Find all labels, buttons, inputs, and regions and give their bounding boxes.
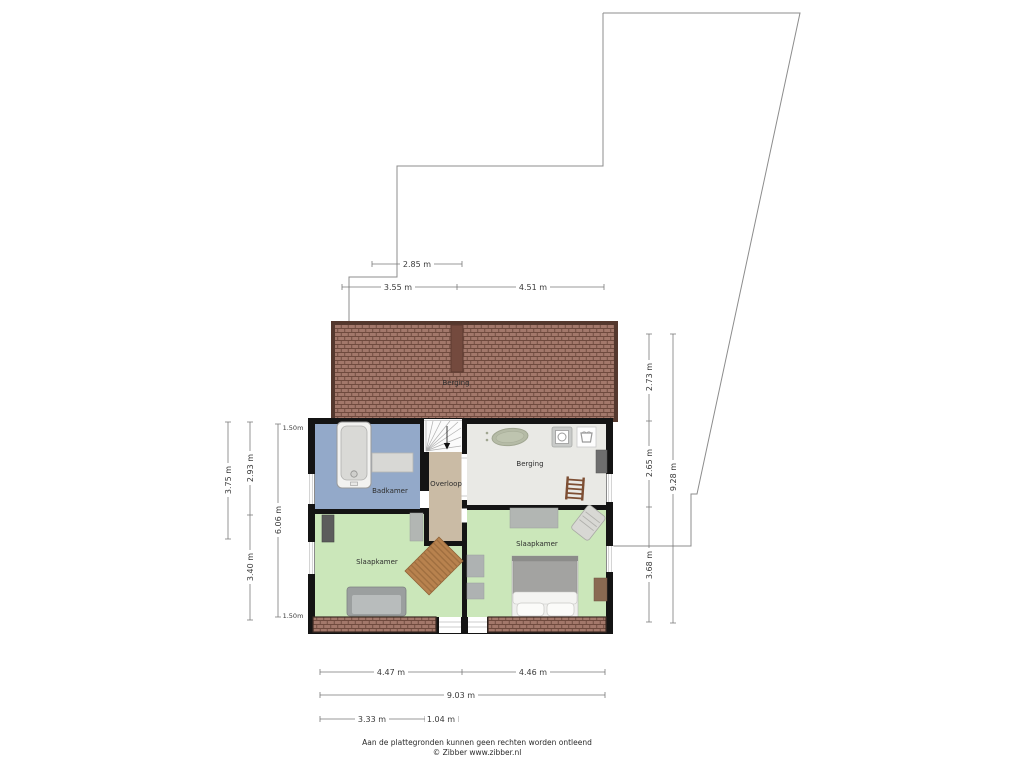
room-stairs — [424, 419, 462, 452]
nightstand-icon — [467, 555, 484, 577]
laundry-basket-icon — [577, 427, 596, 447]
window-bottom-left — [439, 617, 461, 633]
window-left-slaapkamer — [308, 542, 315, 574]
roof-label: Berging — [442, 379, 469, 387]
dimensions-bottom: 4.47 m 4.46 m 9.03 m 3.33 m 1.04 m — [320, 667, 605, 724]
dim-6-06: 6.06 m — [274, 506, 283, 534]
drain-dot — [486, 432, 489, 435]
room-slaapkamer-right: Slaapkamer — [467, 504, 607, 619]
roof-berging: Berging — [333, 323, 616, 420]
dim-2-93: 2.93 m — [246, 454, 255, 482]
dim-2-65: 2.65 m — [645, 449, 654, 477]
drain-dot — [486, 439, 489, 442]
dresser-icon — [510, 508, 558, 528]
window-right-berging — [607, 474, 614, 502]
dim-9-28: 9.28 m — [669, 463, 678, 491]
marker-150-bottom: 1.50m — [283, 612, 304, 620]
dim-4-51: 4.51 m — [519, 283, 547, 292]
floorplan-canvas: Berging Badkamer Overloop Berging — [0, 0, 1024, 768]
closet-icon — [322, 515, 334, 542]
chimney — [451, 325, 463, 372]
dim-3-55: 3.55 m — [384, 283, 412, 292]
window-bottom-right — [468, 617, 487, 633]
sofa-icon — [347, 587, 406, 616]
dim-4-47: 4.47 m — [377, 668, 405, 677]
nightstand-icon — [467, 583, 484, 599]
dim-3-68: 3.68 m — [645, 551, 654, 579]
room-label-berging: Berging — [516, 460, 543, 468]
footer-disclaimer: Aan de plattegronden kunnen geen rechten… — [362, 738, 592, 747]
dimensions-left: 3.75 m 2.93 m 3.40 m 6.06 m 1.50m 1.50m — [223, 422, 303, 620]
door-slaapkamer-right — [462, 509, 468, 523]
floorplan-page: Berging Badkamer Overloop Berging — [0, 0, 1024, 768]
footer: Aan de plattegronden kunnen geen rechten… — [362, 738, 592, 757]
footer-credit: © Zibber www.zibber.nl — [433, 748, 522, 757]
closet-icon — [410, 513, 423, 541]
dim-9-03: 9.03 m — [447, 691, 475, 700]
dim-4-46: 4.46 m — [519, 668, 547, 677]
dim-3-40: 3.40 m — [246, 553, 255, 581]
dim-2-85: 2.85 m — [403, 260, 431, 269]
bathtub-icon — [337, 422, 371, 488]
room-label-slaapkamer-right: Slaapkamer — [516, 540, 558, 548]
door-panel — [596, 450, 607, 473]
washing-machine-icon — [552, 427, 572, 447]
room-berging: Berging — [467, 424, 607, 505]
dim-1-04: 1.04 m — [427, 715, 455, 724]
roof-surface — [333, 323, 616, 420]
room-label-badkamer: Badkamer — [372, 487, 408, 495]
door-badkamer — [420, 491, 429, 508]
room-label-slaapkamer-left: Slaapkamer — [356, 558, 398, 566]
counter-icon — [372, 453, 413, 472]
marker-150-top: 1.50m — [283, 424, 304, 432]
room-badkamer: Badkamer — [315, 422, 420, 509]
dim-3-75: 3.75 m — [224, 466, 233, 494]
opening-berging — [462, 454, 468, 500]
dim-3-33: 3.33 m — [358, 715, 386, 724]
dimensions-right: 2.73 m 2.65 m 3.68 m 9.28 m — [644, 334, 678, 623]
window-right-slaapkamer — [607, 546, 614, 572]
dim-2-73: 2.73 m — [645, 363, 654, 391]
bed-icon — [512, 556, 578, 619]
dimensions-top: 2.85 m 3.55 m 4.51 m — [342, 259, 604, 292]
room-label-overloop: Overloop — [430, 480, 462, 488]
window-left-badkamer — [308, 474, 315, 504]
room-overloop: Overloop — [429, 452, 462, 541]
cabinet-icon — [594, 578, 607, 601]
